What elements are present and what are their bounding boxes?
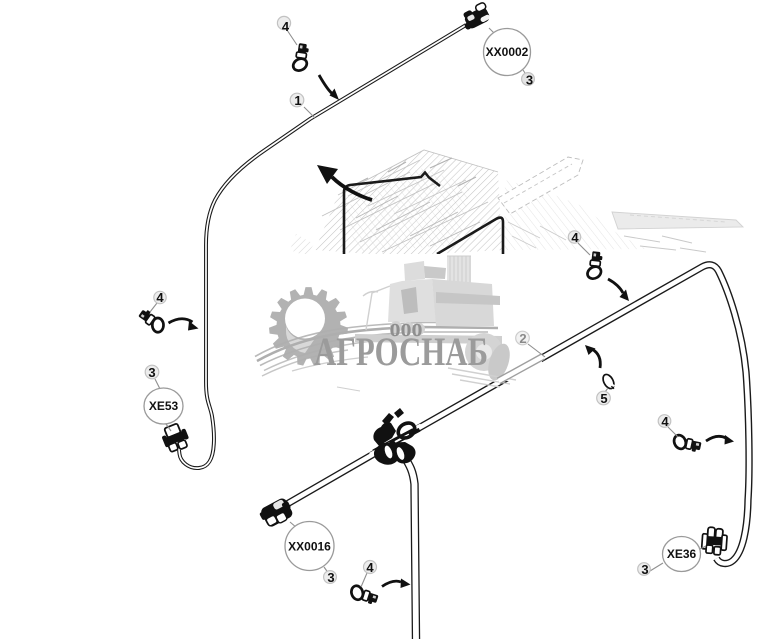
svg-text:XX0002: XX0002	[486, 45, 529, 59]
svg-text:3: 3	[148, 365, 155, 380]
svg-text:1: 1	[294, 93, 301, 108]
svg-text:XE36: XE36	[667, 547, 697, 561]
svg-text:3: 3	[641, 562, 648, 577]
svg-text:4: 4	[282, 19, 290, 34]
svg-text:3: 3	[327, 570, 334, 585]
svg-text:2: 2	[519, 331, 526, 346]
svg-text:4: 4	[366, 560, 374, 575]
svg-text:XX0016: XX0016	[288, 540, 331, 554]
svg-text:3: 3	[526, 73, 533, 88]
svg-text:4: 4	[156, 290, 164, 305]
svg-text:АГРОСНАБ: АГРОСНАБ	[314, 329, 488, 374]
svg-text:4: 4	[661, 414, 669, 429]
svg-text:4: 4	[571, 230, 579, 245]
svg-text:XE53: XE53	[149, 399, 179, 413]
svg-text:5: 5	[600, 391, 607, 406]
